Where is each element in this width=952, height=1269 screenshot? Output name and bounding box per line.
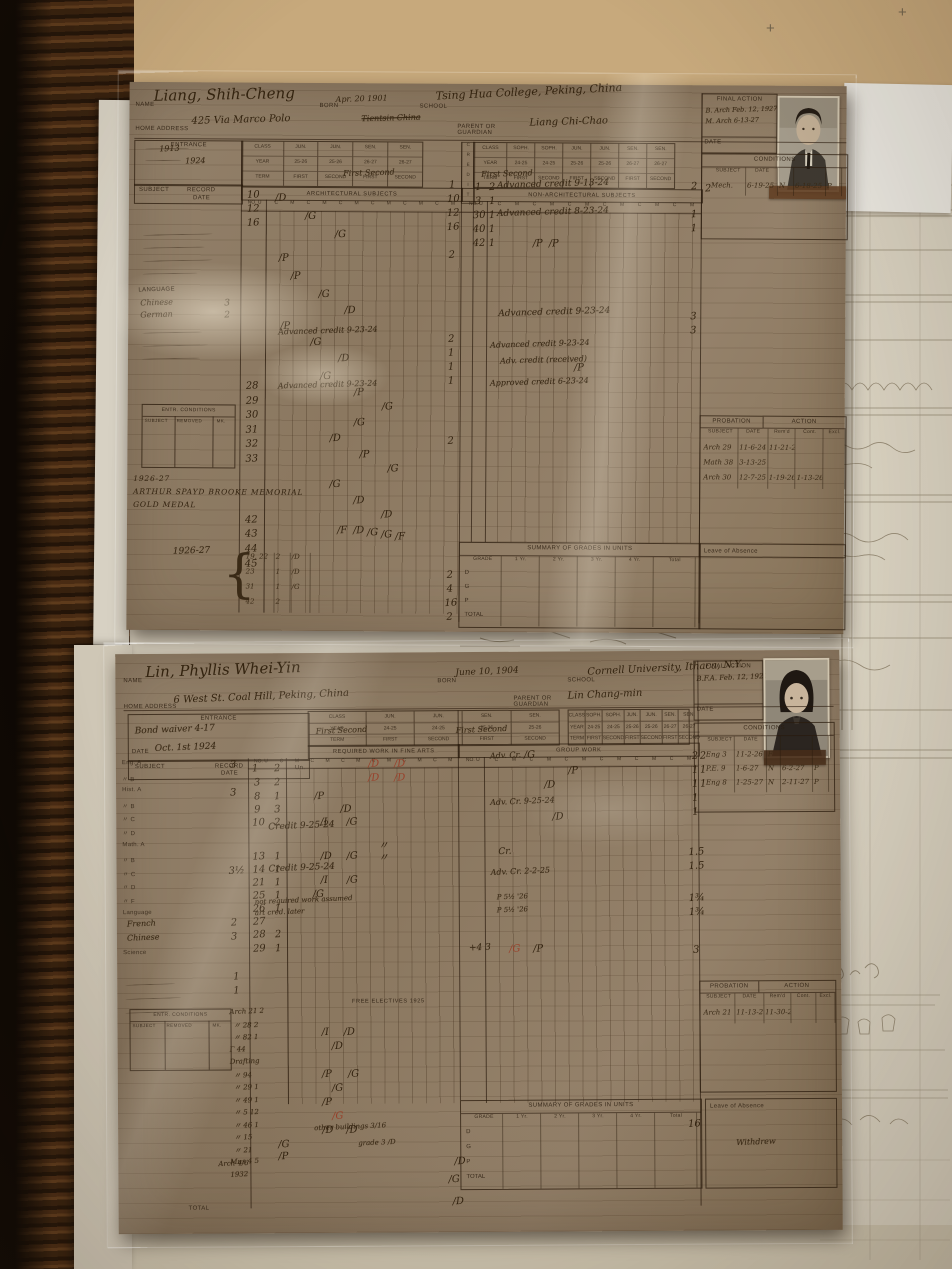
table-cell: [579, 1143, 617, 1158]
table-cell: [503, 1144, 541, 1159]
struck-note: Tientsin China: [361, 113, 420, 124]
table-cell: Arch 30: [702, 473, 738, 488]
final-action-line: M. Arch 6-13-27: [705, 116, 759, 126]
term-cell: SEN.: [511, 711, 558, 722]
grade-mark: 28: [246, 380, 259, 392]
table-header-cell: [826, 168, 842, 182]
grade-mark: 1: [274, 851, 281, 862]
table-row: Eng 311-2-26F: [705, 750, 834, 765]
hand-note: 1913: [159, 144, 180, 154]
table-header-cell: [794, 168, 826, 182]
grade-mark: /F: [337, 525, 348, 536]
grade-mark: /D: [275, 192, 287, 204]
probation-table: SUBJECTDATERem'dCont.Excl.Arch 2911-6-24…: [702, 428, 845, 489]
table-cell: N: [767, 778, 781, 792]
grade-letter: C: [666, 202, 684, 208]
hand-note: 〃 94: [234, 1070, 253, 1081]
table-cell: 6-19-25: [746, 182, 778, 196]
table-cell: 11-21-24: [768, 444, 796, 459]
record-label: RECORD: [187, 187, 215, 193]
table-cell: TOTAL: [463, 612, 501, 626]
grade-mark: /P: [359, 449, 370, 460]
table-cell: 42: [244, 598, 274, 613]
subject-row: 〃 B: [122, 774, 151, 788]
grade-mark: 1¾: [688, 892, 705, 904]
grade-mark: /I: [321, 1027, 329, 1038]
class-row-label: YEAR: [569, 721, 585, 733]
grade-mark: /D: [331, 1041, 343, 1053]
table-row: D: [465, 1128, 701, 1144]
entr-conditions-box: ENTR. CONDITIONS SUBJECT REMOVED MK.: [129, 1009, 231, 1072]
grade-mark: /P: [548, 238, 559, 249]
grade-mark: /G: [347, 1068, 359, 1080]
table-header-cell: 4 Yr.: [616, 557, 654, 571]
entrance-date: Oct. 1st 1924: [155, 742, 217, 755]
term-column: SEN.26-27FIRST: [662, 710, 678, 744]
table-cell: D: [465, 1129, 503, 1144]
born-value: June 10, 1904: [455, 666, 519, 679]
grade-mark: /D: [320, 851, 332, 863]
term-cell: FIRST: [619, 173, 646, 188]
term-cell: JUN.: [640, 710, 661, 721]
grade-mark: /P: [533, 943, 544, 955]
hand-note: 〃 29 1: [234, 1082, 259, 1093]
term-cell: SOPH.: [603, 710, 624, 721]
grade-mark: 10: [447, 194, 460, 206]
probation-box: PROBATION ACTION SUBJECTDATERem'dCont.Ex…: [699, 980, 837, 1093]
table-cell: [823, 474, 845, 489]
free-electives-label: FREE ELECTIVES 1925: [313, 995, 463, 1008]
class-row-label: CLASS: [569, 710, 585, 721]
grade-mark: /G: [332, 1111, 344, 1123]
final-action-label: FINAL ACTION: [703, 96, 777, 102]
table-header-cell: DATE: [735, 993, 764, 1008]
grade-mark: 2: [275, 929, 282, 940]
table-cell: [781, 750, 813, 764]
table-cell: [579, 1158, 617, 1173]
grade-mark: 31: [245, 424, 258, 436]
grade-letter: M: [351, 758, 366, 764]
grade-letter: M: [320, 758, 335, 764]
table-cell: [501, 612, 539, 626]
pencil-cross-mark: +: [898, 4, 907, 21]
table-cell: [655, 1173, 697, 1188]
home-address-value: 425 Via Marco Polo: [191, 113, 290, 127]
table-cell: [768, 459, 796, 474]
white-paper-sheet: [842, 83, 952, 213]
table-row: Eng 81-25-27N2-11-27P: [705, 778, 834, 793]
entr-conditions-label: ENTR. CONDITIONS: [143, 407, 235, 414]
table-cell: [539, 612, 577, 626]
term-cell: 25-26: [591, 158, 618, 173]
table-cell: [816, 1008, 835, 1023]
term-column: SOPH.24-25SECOND: [602, 710, 625, 744]
table-cell: [541, 1173, 579, 1188]
grade-mark: /D: [452, 1196, 464, 1208]
hand-note: +4 3: [469, 943, 491, 954]
medal-line: ARTHUR SPAYD BROOKE MEMORIAL: [133, 485, 303, 499]
term-column: SEN.25-26SECOND: [510, 711, 559, 745]
table-header-cell: GRADE: [465, 1114, 503, 1129]
grade-mark: /G: [346, 816, 358, 828]
table-cell: [540, 570, 578, 584]
summary-label: SUMMARY OF GRADES IN UNITS: [460, 545, 700, 552]
hand-note: 〃 28 2: [233, 1020, 258, 1031]
year-note: 1926-27: [173, 546, 211, 557]
table-header-cell: Cont.: [791, 993, 816, 1008]
grade-mark: 3: [690, 311, 697, 322]
table-cell: [796, 459, 824, 474]
table-cell: G: [464, 584, 502, 598]
subject-label: SUBJECT: [132, 1023, 155, 1028]
grade-mark: 4: [446, 584, 453, 595]
table-cell: [577, 599, 615, 613]
grade-mark: 29: [245, 395, 258, 407]
grade-mark: 2: [446, 612, 453, 623]
grade-mark: 1: [489, 196, 496, 207]
grade-mark: /G: [367, 527, 379, 539]
table-row: SUBJECTDATE: [710, 167, 847, 182]
table-row: GRADE1 Yr.2 Yr.3 Yr.4 Yr.Total: [464, 556, 700, 571]
entrance-note: Bond waiver 4-17: [135, 723, 216, 736]
table-cell: [503, 1159, 541, 1174]
term-cell: JUN.: [625, 710, 640, 721]
table-header-cell: [767, 736, 781, 750]
table-header-cell: Excl.: [816, 993, 835, 1008]
table-cell: /D: [291, 553, 311, 568]
grade-letter: M: [575, 756, 593, 762]
table-cell: [616, 571, 654, 585]
summary-box: SUMMARY OF GRADES IN UNITS GRADE1 Yr.2 Y…: [458, 542, 701, 629]
grade-letter: C: [332, 200, 348, 206]
grade-mark: /G: [278, 1139, 290, 1151]
hand-note: Γ 44: [229, 1045, 245, 1054]
grade-mark: 30: [473, 210, 486, 222]
term-cell: SEN.: [663, 710, 678, 721]
grade-mark: /D: [544, 779, 556, 791]
table-cell: 2: [275, 553, 291, 568]
grade-mark: /P: [278, 253, 289, 264]
grade-mark: 1: [692, 792, 699, 803]
grade-mark: 14: [252, 864, 265, 876]
table-row: SUBJECTDATE: [705, 736, 834, 751]
removed-label: REMOVED: [177, 418, 203, 423]
table-row: G: [465, 1143, 701, 1159]
grade-mark: /P: [568, 765, 579, 777]
summary-table: GRADE1 Yr.2 Yr.3 Yr.4 Yr.TotalDGPTOTAL: [465, 1113, 701, 1189]
term-cell: 25-26: [625, 721, 640, 733]
grade-mark: 1: [449, 180, 456, 191]
grade-mark: 1: [691, 209, 698, 220]
table-cell: Eng 3: [705, 750, 735, 764]
grade-mark: /D: [353, 525, 365, 537]
grade-letter: M: [683, 202, 701, 208]
grade-letter: C: [365, 200, 381, 206]
grade-mark: 1: [274, 864, 281, 875]
grade-mark: 1: [274, 877, 281, 888]
grade-mark: 13: [252, 851, 265, 863]
leave-label: Leave of Absence: [704, 548, 758, 554]
term-column: JUN.25-26FIRST: [624, 710, 640, 744]
table-cell: [541, 1158, 579, 1173]
grade-mark: 44: [245, 543, 258, 555]
grade-mark: /P: [322, 1097, 333, 1109]
hand-note: French: [127, 918, 156, 928]
grade-mark: 10: [252, 817, 265, 829]
grade-mark: 32: [245, 438, 258, 450]
grade-mark: /G: [353, 417, 365, 429]
grade-mark: /G: [320, 371, 332, 383]
table-row: 231/D: [245, 568, 315, 583]
table-header-cell: Rem'd: [768, 429, 796, 444]
leave-of-absence-box: Leave of Absence Withdrew: [705, 1098, 838, 1189]
subject-label: SUBJECT: [139, 187, 169, 193]
grade-letter: M: [289, 758, 304, 764]
grade-letter: C: [628, 756, 646, 762]
table-cell: 1: [275, 568, 291, 583]
gold-medal-note: 1926-27 ARTHUR SPAYD BROOKE MEMORIAL GOL…: [133, 472, 303, 512]
term-cell: JUN.: [284, 142, 318, 156]
grade-mark: /G: [524, 749, 536, 761]
grade-grid-left: [286, 767, 460, 1104]
grade-letter: M: [613, 202, 631, 208]
grade-letter: M: [284, 200, 300, 206]
grade-mark: 1: [448, 362, 455, 373]
table-row: Math 383-13-25: [702, 458, 845, 474]
medal-line: 1926-27: [133, 472, 303, 486]
term-column: SEN.26-27SECOND: [646, 144, 674, 188]
term-cell: 24-25: [366, 722, 413, 734]
grade-letter: M: [412, 757, 427, 763]
grade-letter: C: [300, 200, 316, 206]
grade-mark: 1: [233, 985, 240, 996]
hand-note: 〃 15: [234, 1132, 253, 1143]
table-cell: 11-2-26: [735, 750, 767, 764]
probation-table: SUBJECTDATERem'dCont.Excl.Arch 2111-13-2…: [702, 993, 835, 1024]
table-cell: [615, 599, 653, 613]
grade-letter: M: [413, 201, 429, 207]
subject-row: 〃 D: [122, 828, 151, 842]
grade-letter: C: [526, 201, 544, 207]
grade-mark: /P: [574, 362, 585, 373]
grade-letter: M: [316, 200, 332, 206]
grade-mark: /D: [322, 1125, 334, 1137]
table-cell: TOTAL: [465, 1174, 503, 1189]
grade-mark: 2: [448, 334, 455, 345]
guardian-label: PARENT OR GUARDIAN: [513, 696, 555, 708]
grade-mark: 16: [447, 222, 460, 234]
entrance-box: ENTRANCE Bond waiver 4-17 DATE Oct. 1st …: [128, 713, 310, 762]
probation-label: PROBATION: [700, 983, 758, 989]
table-header-cell: SUBJECT: [710, 167, 746, 181]
grade-mark: 1: [489, 210, 496, 221]
table-header-cell: [813, 736, 829, 750]
hand-note: Drafting: [230, 1057, 260, 1066]
grade-mark: /D: [381, 509, 393, 521]
grade-mark: /G: [381, 401, 393, 413]
grade-mark: /D: [346, 1124, 358, 1136]
grade-letter: C: [593, 756, 611, 762]
withdrew-note: Withdrew: [736, 1137, 776, 1148]
grade-mark: 2: [489, 182, 496, 193]
grade-letter: M: [508, 201, 526, 207]
grade-letter: C: [663, 756, 681, 762]
guardian-label: PARENT OR GUARDIAN: [457, 124, 497, 136]
table-cell: N: [778, 182, 794, 196]
term-column: SOPH.24-25FIRST: [585, 710, 602, 744]
term-cell: 24-25: [603, 721, 624, 733]
table-cell: [617, 1143, 655, 1158]
grade-letter: C: [335, 758, 350, 764]
grade-mark: 25: [252, 890, 265, 902]
hand-note: LANGUAGE: [138, 286, 175, 293]
table-cell: [541, 1128, 579, 1143]
grade-mark: 1: [488, 238, 495, 249]
hand-note: P 5½ '26: [497, 905, 529, 914]
table-cell: [579, 1128, 617, 1143]
hand-note: German: [140, 310, 173, 320]
table-cell: 3-13-25: [738, 459, 768, 474]
grade-mark: 1: [489, 224, 496, 235]
table-row: Arch 2111-13-2511-30-25: [702, 1008, 835, 1024]
grade-mark: 42: [245, 514, 258, 526]
table-row: Arch 2911-6-2411-21-24: [702, 443, 845, 459]
grade-mark: 3: [690, 325, 697, 336]
table-header-cell: Excl.: [824, 429, 846, 444]
term-cell: 25-26: [563, 157, 590, 172]
term-column: SEN.26-27SECOND: [677, 710, 700, 744]
table-row: P: [465, 1158, 701, 1174]
school-label: SCHOOL: [567, 677, 595, 683]
grade-mark: 〃: [378, 848, 389, 864]
term-cell: SEN.: [463, 711, 510, 722]
table-row: 311/G: [245, 583, 315, 598]
school-value: Tsing Hua College, Peking, China: [435, 81, 622, 103]
table-cell: [617, 1128, 655, 1143]
table-cell: F: [767, 750, 781, 764]
conditions-table: SUBJECTDATEEng 311-2-26FP.E. 91-6-27N6-2…: [705, 736, 834, 793]
table-cell: [290, 598, 310, 613]
final-action-line: B. Arch Feb. 12, 1927: [705, 105, 777, 115]
subject-row: 〃 F: [123, 896, 152, 910]
table-cell: [655, 1158, 697, 1173]
table-cell: [617, 1173, 655, 1188]
table-cell: [502, 570, 540, 584]
table-cell: 1-25-27: [735, 778, 767, 792]
grade-mark: /G: [312, 889, 324, 901]
subject-record-header: SUBJECT RECORD DATE: [134, 184, 243, 205]
grade-letter: C: [305, 758, 320, 764]
table-cell: [502, 584, 540, 598]
table-header-cell: Cont.: [796, 429, 824, 444]
grade-letter: M: [540, 757, 558, 763]
conditions-table: SUBJECTDATEMech.6-19-25N6-18-25P: [710, 167, 847, 196]
total-label: TOTAL: [189, 1206, 210, 1212]
table-header-cell: SUBJECT: [705, 736, 735, 750]
hand-note: 〃 21: [234, 1145, 253, 1156]
grade-mark: /G: [346, 850, 358, 862]
grade-mark: 16: [247, 217, 260, 229]
term-column: JUN.24-25FIRST: [365, 711, 414, 745]
grade-mark: /P: [280, 321, 291, 332]
table-cell: Arch 21: [702, 1008, 735, 1023]
grade-letter: C: [558, 756, 576, 762]
conditions-label: CONDITIONS: [695, 725, 834, 732]
term-cell: 24-25: [535, 157, 562, 172]
grade-mark: /G: [346, 874, 358, 886]
table-cell: [653, 599, 695, 613]
table-header-cell: SUBJECT: [702, 993, 735, 1008]
grade-mark: 1: [274, 903, 281, 914]
grade-mark: /D: [344, 305, 356, 317]
grade-mark: 2: [446, 570, 453, 581]
grade-mark: /G: [329, 479, 341, 491]
subject-row: 〃 B: [122, 855, 151, 869]
term-cell: 25-26: [284, 156, 318, 171]
grade-mark: 2: [231, 917, 238, 928]
grade-mark: /F: [395, 531, 406, 542]
grade-mark: 33: [245, 453, 258, 465]
table-cell: [813, 750, 829, 764]
table-cell: /D: [291, 568, 311, 583]
record-card-lin: NAME Lin, Phyllis Whei-Yin BORN June 10,…: [115, 650, 843, 1234]
table-cell: P: [463, 598, 501, 612]
grade-mark: 3: [230, 787, 237, 798]
grade-mark: 1: [700, 764, 707, 775]
table-cell: Arch 29: [702, 443, 738, 458]
table-cell: /G: [291, 583, 311, 598]
probation-box: PROBATION ACTION SUBJECTDATERem'dCont.Ex…: [699, 415, 847, 558]
grade-mark: /P: [321, 1069, 332, 1081]
grade-mark: 2: [700, 750, 707, 761]
grade-mark: /D: [353, 495, 365, 507]
hand-note: 1932: [230, 1170, 248, 1179]
table-cell: [796, 444, 824, 459]
table-header-cell: Rem'd: [764, 993, 791, 1008]
term-cell: SEN.: [647, 144, 674, 158]
subject-row: 〃 D: [123, 882, 152, 896]
term-cell: FIRST: [284, 171, 318, 186]
hand-note: First Second: [481, 168, 533, 178]
subject-row: Eng. A: [122, 760, 151, 774]
table-cell: [539, 598, 577, 612]
grade-mark: 3: [254, 777, 261, 788]
table-row: 422: [244, 598, 314, 613]
grade-mark: 3: [475, 196, 482, 207]
grade-letter: C: [429, 201, 445, 207]
grade-mark: /G: [332, 1083, 344, 1095]
born-value: Apr. 20 1901: [335, 93, 387, 103]
table-cell: [616, 585, 654, 599]
hand-note: Chinese: [140, 298, 173, 308]
table-cell: P: [826, 182, 842, 196]
grade-letter: M: [443, 757, 458, 763]
hand-note: 〃 82 1: [233, 1032, 258, 1043]
grade-mark: /G: [509, 943, 521, 955]
term-column: SEN.26-27FIRST: [618, 144, 646, 188]
term-column: SEN.26-27FIRST: [352, 142, 387, 186]
subject-label: SUBJECT: [145, 418, 168, 423]
table-cell: 11-30-25: [764, 1008, 791, 1023]
term-column: JUN.25-26SECOND: [639, 710, 662, 744]
grade-mark: 9: [254, 804, 261, 815]
table-cell: [617, 1158, 655, 1173]
grade-mark: /P: [354, 387, 365, 398]
table-header-cell: [781, 736, 813, 750]
grade-mark: 2: [692, 750, 699, 761]
grade-mark: 1: [700, 778, 707, 789]
conditions-label: CONDITIONS: [702, 156, 847, 163]
